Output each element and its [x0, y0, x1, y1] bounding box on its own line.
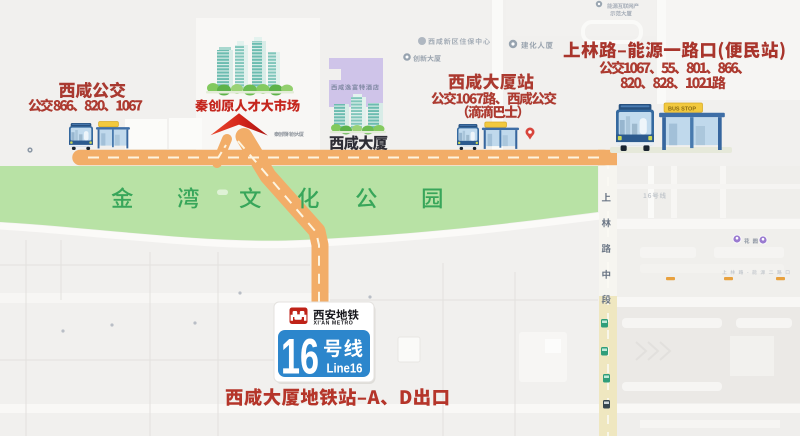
svg-text:BUS STOP: BUS STOP — [668, 107, 696, 113]
svg-text:XI'AN METRO: XI'AN METRO — [314, 321, 354, 327]
svg-text:16: 16 — [281, 329, 319, 385]
svg-text:Line16: Line16 — [327, 361, 363, 376]
